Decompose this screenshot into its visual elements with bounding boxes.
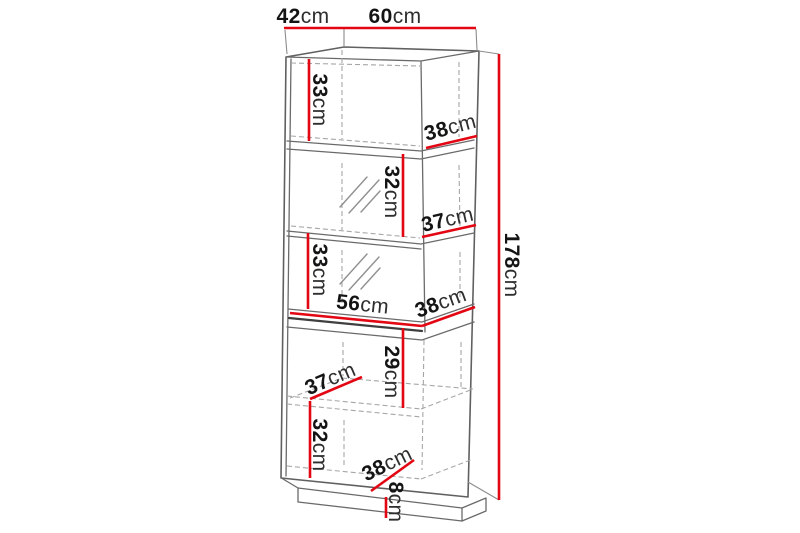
- label-lower-cabinet-height: 32cm: [308, 419, 331, 472]
- label-top-width: 60cm: [369, 5, 422, 28]
- cabinet-dimension-diagram: 42cm 60cm 178cm 33cm 38cm 32cm 37cm 33cm…: [0, 0, 800, 533]
- label-top-depth: 42cm: [277, 5, 330, 28]
- label-top-compartment-height: 33cm: [308, 74, 331, 127]
- label-upper-display-height: 32cm: [380, 166, 403, 219]
- diagram-canvas: 42cm 60cm 178cm 33cm 38cm 32cm 37cm 33cm…: [0, 0, 800, 533]
- label-lower-display-height: 33cm: [308, 244, 331, 297]
- label-total-height: 178cm: [500, 232, 523, 297]
- label-niche-height: 29cm: [380, 346, 403, 399]
- label-plinth-height: 8cm: [384, 482, 407, 523]
